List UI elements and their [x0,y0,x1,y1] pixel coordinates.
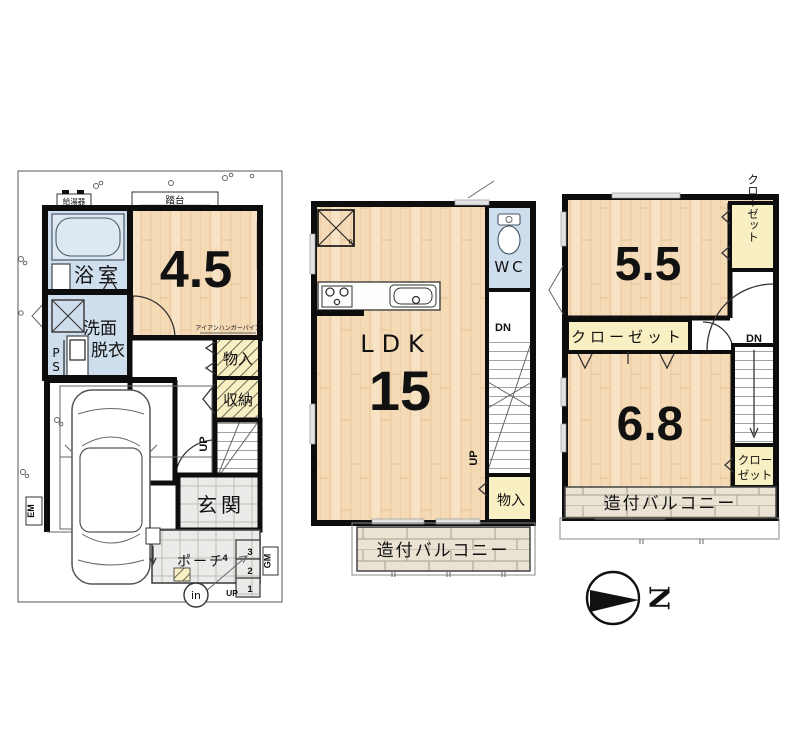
step-4: 4 [222,553,228,564]
balcony-2f-label: 造付バルコニー [377,541,510,561]
storage-monoire-label: 物入 [223,350,253,368]
floor1-plan: 給湯器 踏台 浴室 4.5 アイアンハンガーパイプ [18,171,282,607]
stairs-up-label: UP [468,450,480,465]
closet-small-label-1: クロー [738,453,773,467]
floor-plan: 給湯器 踏台 浴室 4.5 アイアンハンガーパイプ [0,0,800,743]
closet-right-label: クローゼット [746,174,760,243]
floor3-plan: 5.5 クローゼット クローゼット 6.8 [549,174,779,545]
window [310,404,315,444]
intercom: in [184,583,208,607]
ldk-label: LDK [360,330,432,358]
step-3: 3 [247,547,252,558]
floor2-plan: R LDK 15 [310,181,535,577]
balcony-3f: 造付バルコニー [560,487,779,544]
hanger-pipe-label: アイアンハンガーパイプ [195,324,260,332]
closet-right: クローゼット [722,174,776,271]
step-1: 1 [247,584,253,595]
window [561,424,566,452]
storage-shuno-label: 収納 [223,391,253,409]
washroom: 洗面 脱衣 P S [32,292,133,378]
closet-small: クロー ゼット [725,445,776,487]
window-shutter-mark [549,266,563,314]
stairs-3f: DN [733,333,776,445]
ldk-size: 15 [369,359,431,422]
room-6-8-size: 6.8 [617,398,684,451]
window [455,200,489,205]
fridge-label: R [349,238,354,246]
floor-plan-canvas: 給湯器 踏台 浴室 4.5 アイアンハンガーパイプ [0,0,800,743]
storage-monoire-1f: 物入 [206,338,260,378]
window [612,193,680,198]
stairs-up-label: UP [198,436,210,451]
compass-north-label: N [643,586,674,611]
compass: N [587,572,674,624]
em-label: EM [26,504,36,518]
ps-label-2: S [52,360,60,374]
car [65,390,157,584]
toilet [498,214,520,254]
wc-label: WC [494,258,525,276]
porch-up-label: UP [226,588,238,598]
gm-label: GM [263,554,273,569]
window [561,212,566,246]
bath-counter [52,264,70,290]
intercom-label: in [191,589,201,602]
washroom-label-2: 脱衣 [91,341,125,361]
eave-mark [468,181,494,198]
gm-meter: GM [263,547,279,575]
room-4-5-size: 4.5 [160,241,232,299]
bathroom: 浴室 [45,208,130,292]
step-2: 2 [247,566,252,577]
em-meter: EM [26,497,42,525]
storage-2f-label: 物入 [497,493,525,509]
bathtub [52,214,124,260]
storage-2f: 物入 [479,475,533,521]
room-4-5: 4.5 アイアンハンガーパイプ [130,205,262,338]
window [310,234,315,274]
washing-machine [52,300,84,332]
stairs-dn-label: DN [495,322,511,334]
closet-small-label-2: ゼット [738,468,773,482]
closet-mid-label: クローゼット [571,328,685,346]
ps-label-1: P [52,346,59,360]
stairs-dn-label-3f: DN [746,333,762,345]
entrance-label: 玄関 [197,493,245,517]
bathroom-label: 浴室 [74,263,122,287]
balcony-2f: 造付バルコニー [352,523,535,577]
entrance: 玄関 [178,475,260,530]
porch-label: ポーチ [177,554,225,570]
room-5-5-size: 5.5 [615,238,682,291]
water-heater-label: 給湯器 [63,196,86,206]
balcony-3f-label: 造付バルコニー [604,494,737,514]
meter-box [174,568,190,581]
window [561,378,566,406]
